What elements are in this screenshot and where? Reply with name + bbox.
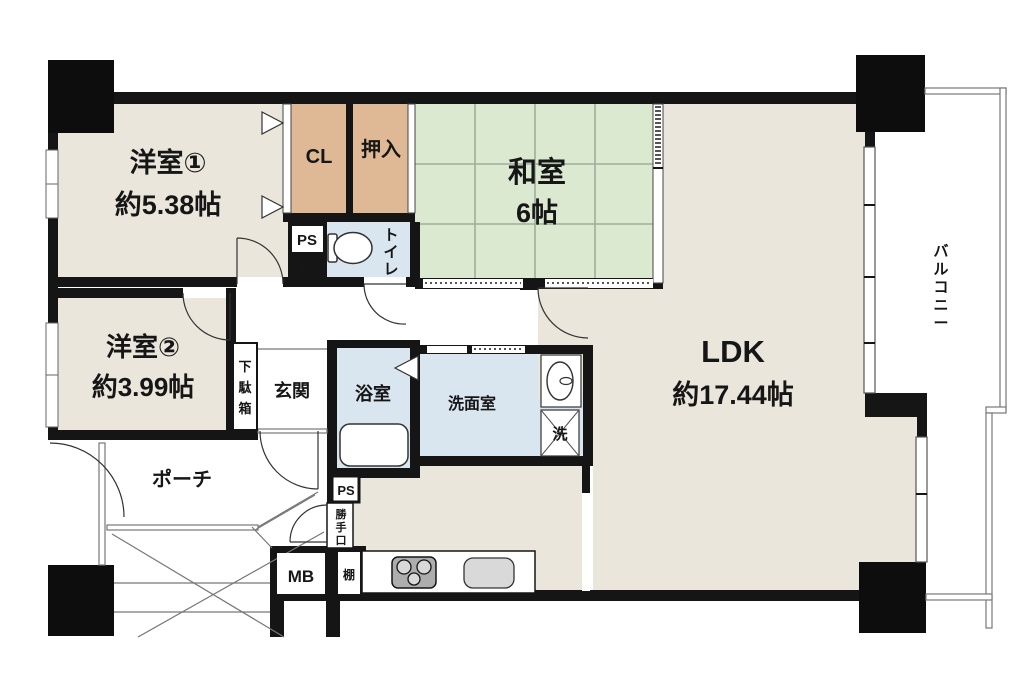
kitchen-sink-icon — [464, 558, 514, 588]
label-yoshitsu1-size: 約5.38帖 — [115, 189, 222, 220]
window-ldk-lower — [916, 437, 927, 562]
wall-y2-top-a — [48, 288, 183, 298]
wall-ldk-right-stub2 — [917, 417, 927, 437]
stove-burner — [397, 560, 411, 574]
floor-yoshitsu2 — [58, 298, 236, 430]
pillar-top-left — [48, 60, 114, 133]
katteguchi-door-arc — [290, 505, 327, 542]
pillar-bottom-left — [48, 565, 114, 636]
wall-tab-right — [326, 601, 340, 637]
label-ldk: LDK — [701, 334, 765, 369]
wall-y2-bottom — [48, 430, 258, 440]
label-toilet-2: イ — [383, 244, 398, 261]
label-toilet-1: ト — [383, 227, 398, 244]
label-porch: ポーチ — [152, 467, 212, 491]
window-ldk-upper — [864, 147, 875, 393]
kitchen-ldk-opening — [582, 493, 590, 591]
label-yoshitsu2-size: 約3.99帖 — [92, 372, 195, 402]
balcony-right-rail-upper — [1000, 88, 1006, 412]
label-getabako-1: 下 — [238, 359, 251, 374]
label-washitsu-size: 6帖 — [516, 198, 558, 228]
label-genkan: 玄関 — [274, 380, 310, 401]
label-cl: CL — [306, 146, 333, 168]
balcony-rail-jog — [986, 407, 1006, 413]
label-katteguchi-2: 手 — [336, 520, 347, 534]
label-ps-lower: PS — [337, 483, 355, 498]
wall-kitchen-ldk — [582, 466, 590, 493]
label-ps-upper: PS — [297, 232, 317, 249]
porch-left-rail — [99, 443, 105, 565]
label-oshiire: 押入 — [361, 137, 401, 161]
balcony-top-rail — [925, 88, 1006, 94]
label-katteguchi-3: 口 — [336, 534, 347, 547]
wall-top — [48, 92, 925, 104]
toilet-door-arc — [364, 284, 406, 324]
label-yoshitsu1: 洋室① — [130, 147, 207, 178]
closet-door-strip — [283, 104, 291, 213]
wall-cl-oshiire — [346, 104, 353, 216]
label-katteguchi-1: 勝 — [336, 507, 348, 521]
wall-bath-top — [327, 340, 420, 348]
washstand-faucet-icon — [560, 378, 572, 385]
label-balcony-1: バ — [933, 243, 948, 260]
label-ldk-size: 約17.44帖 — [672, 379, 794, 410]
label-balcony-5: ー — [933, 315, 948, 332]
bathtub-icon — [340, 424, 408, 466]
label-getabako-3: 箱 — [238, 401, 251, 416]
wall-senmen-bottom — [420, 456, 593, 466]
label-balcony-3: コ — [933, 279, 948, 296]
stove-burner — [417, 560, 431, 574]
senmen-door-white — [427, 346, 467, 353]
oshiire-fusuma-strip — [408, 104, 415, 213]
wall-y1-bottom-a — [48, 277, 237, 287]
label-balcony-2: ル — [933, 261, 948, 278]
porch-diagonal-mb — [252, 527, 272, 548]
floor-plan: 洋室① 約5.38帖 CL 押入 和室 6帖 LDK 約17.44帖 PS 棚 … — [0, 0, 1024, 680]
balcony-partition — [926, 594, 992, 600]
label-laundry: 洗 — [552, 425, 567, 443]
floor-ldk-lower — [593, 398, 918, 590]
label-mb: MB — [288, 567, 314, 586]
label-getabako-2: 駄 — [238, 380, 252, 395]
label-senmen: 洗面室 — [448, 394, 496, 413]
entrance-door-arc — [260, 431, 318, 489]
pillar-bottom-right — [859, 562, 926, 633]
label-tana-lower: 棚 — [343, 567, 355, 582]
porch-diagonal-b — [255, 495, 315, 530]
toilet-bowl-icon — [334, 233, 372, 264]
porch-gate-arc — [50, 443, 124, 517]
label-yoshitsu2: 洋室② — [106, 332, 180, 362]
genkan-step — [258, 429, 327, 433]
wall-toilet-bottom-a — [327, 277, 364, 287]
label-tana-upper: 棚 — [300, 260, 313, 275]
washitsu-south-door-a — [423, 279, 523, 288]
wall-ldk-jog — [865, 393, 927, 417]
stove-burner — [408, 573, 420, 585]
wall-tab-left — [270, 601, 284, 637]
floor-washitsu — [415, 104, 653, 279]
wall-toilet-right — [410, 222, 420, 278]
floor-plan-svg: 洋室① 約5.38帖 CL 押入 和室 6帖 LDK 約17.44帖 PS 棚 … — [0, 0, 1024, 680]
wall-senmen-right — [583, 345, 593, 466]
porch-step-line — [107, 525, 258, 530]
void-x-1 — [112, 534, 284, 637]
wall-cl-bottom — [283, 213, 415, 222]
label-toilet-3: レ — [383, 261, 398, 278]
pillar-top-right — [856, 55, 925, 132]
label-balcony-4: ニ — [933, 297, 948, 314]
label-yokushitsu: 浴室 — [355, 383, 391, 404]
wall-ldk-right-stub — [865, 132, 875, 147]
label-washitsu: 和室 — [508, 155, 566, 189]
